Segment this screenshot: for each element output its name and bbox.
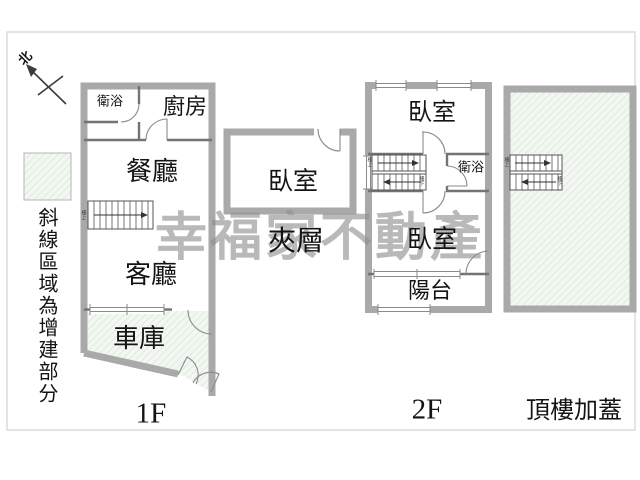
legend-note: 斜線區域為增建部分 bbox=[36, 207, 56, 405]
stairs-rooftop bbox=[510, 155, 562, 190]
room-label-garage: 車庫 bbox=[113, 326, 165, 352]
room-label-kitchen: 廚房 bbox=[163, 96, 207, 118]
room-label-bath-2f: 衛浴 bbox=[458, 161, 484, 174]
rooftop-label: 頂樓加蓋 bbox=[526, 399, 622, 423]
walls-rooftop bbox=[507, 89, 633, 309]
room-label-dining: 餐廳 bbox=[126, 159, 178, 185]
stair-note-rooftop-up: 樓上 bbox=[504, 157, 509, 167]
stair-note-rooftop-down: 樓下 bbox=[557, 176, 562, 186]
legend-swatch bbox=[24, 153, 71, 200]
room-label-bath-1f: 衛浴 bbox=[97, 95, 123, 108]
stair-note-2f-down: 樓下 bbox=[419, 176, 424, 186]
stairs-1f bbox=[88, 201, 153, 229]
stair-note-2f-up: 樓上 bbox=[367, 157, 372, 167]
room-label-balcony: 陽台 bbox=[408, 280, 452, 302]
floor-plan-image: 幸福家不動產 北 斜線區域為增建部分 衛浴 廚房 餐廳 客廳 車庫 1F 臥室 … bbox=[0, 0, 640, 480]
mezzanine-label: 夾層 bbox=[268, 228, 324, 256]
room-label-bedroom-front-2f: 臥室 bbox=[408, 101, 456, 125]
rooftop-plan bbox=[507, 89, 633, 309]
stair-note-1f-up: 樓上 bbox=[81, 210, 86, 220]
window-living-garage bbox=[90, 304, 164, 315]
room-label-bedroom-rear-2f: 臥室 bbox=[407, 228, 457, 253]
floor-label-1f: 1F bbox=[136, 400, 167, 429]
room-label-bedroom-mezzanine: 臥室 bbox=[268, 170, 318, 195]
room-label-living: 客廳 bbox=[125, 262, 177, 288]
floor-label-2f: 2F bbox=[412, 396, 443, 425]
